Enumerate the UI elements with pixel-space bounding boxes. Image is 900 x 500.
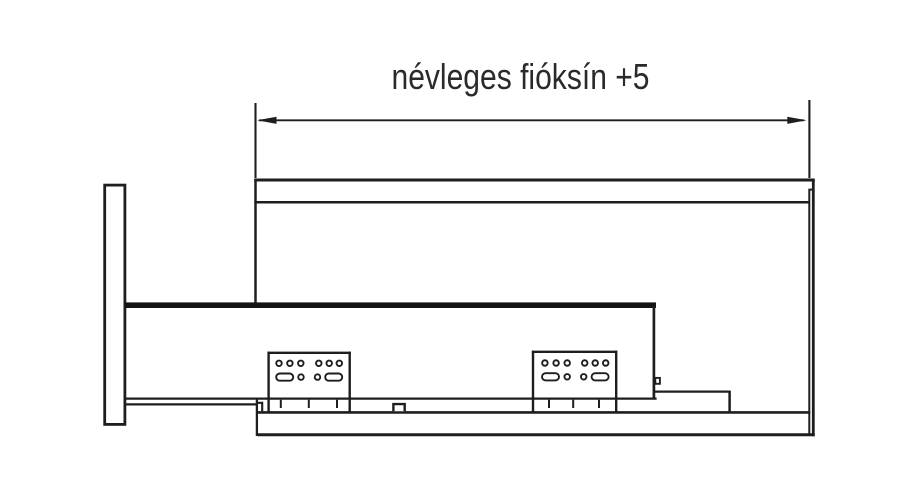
- svg-text:névleges fióksín +5: névleges fióksín +5: [392, 56, 650, 97]
